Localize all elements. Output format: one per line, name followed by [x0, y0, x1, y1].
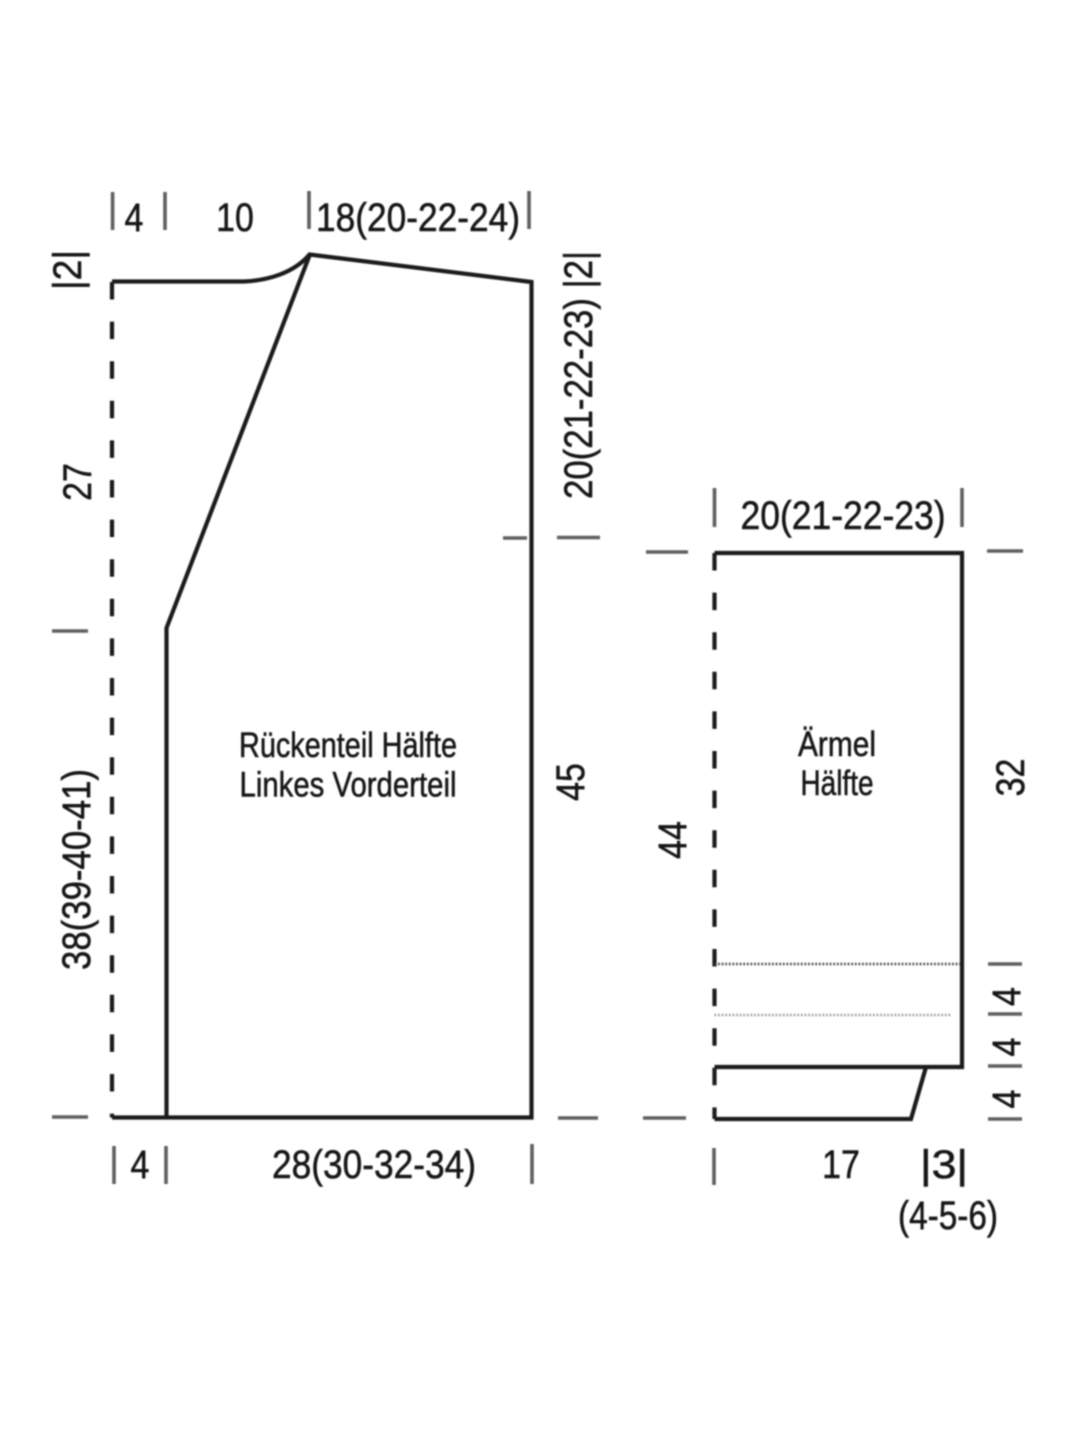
svg-text:32: 32 — [989, 759, 1033, 797]
svg-text:4: 4 — [985, 1090, 1029, 1109]
svg-text:Linkes Vorderteil: Linkes Vorderteil — [240, 766, 457, 805]
svg-text:18(20-22-24): 18(20-22-24) — [316, 196, 520, 240]
svg-text:Rückenteil Hälfte: Rückenteil Hälfte — [239, 726, 457, 765]
svg-text:45: 45 — [549, 763, 593, 801]
svg-text:28(30-32-34): 28(30-32-34) — [272, 1143, 476, 1187]
svg-text:Ärmel: Ärmel — [798, 725, 876, 764]
svg-text:20(21-22-23) |2|: 20(21-22-23) |2| — [557, 251, 601, 499]
svg-text:17: 17 — [822, 1143, 860, 1187]
svg-text:27: 27 — [56, 463, 100, 501]
svg-text:(4-5-6): (4-5-6) — [898, 1194, 998, 1238]
svg-text:4: 4 — [131, 1143, 150, 1187]
svg-text:20(21-22-23): 20(21-22-23) — [741, 494, 946, 538]
svg-text:44: 44 — [651, 821, 695, 859]
svg-text:4: 4 — [985, 1038, 1029, 1057]
svg-text:|2|: |2| — [46, 250, 90, 290]
svg-text:4: 4 — [125, 196, 144, 240]
svg-text:|3|: |3| — [920, 1143, 968, 1187]
svg-text:Hälfte: Hälfte — [801, 764, 874, 803]
svg-text:4: 4 — [985, 987, 1029, 1006]
svg-text:38(39-40-41): 38(39-40-41) — [55, 769, 99, 970]
svg-text:10: 10 — [216, 196, 254, 240]
